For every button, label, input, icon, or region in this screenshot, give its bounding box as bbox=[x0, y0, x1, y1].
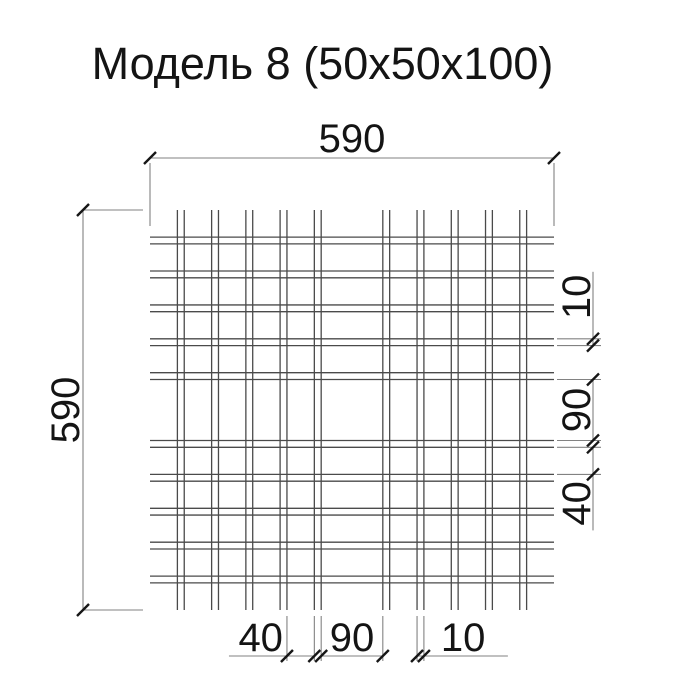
mesh-technical-drawing: 590590409010109040 bbox=[0, 0, 700, 700]
dimension-label-right-1: 90 bbox=[555, 388, 599, 433]
dimension-label-right-2: 40 bbox=[555, 481, 599, 525]
dimension-label-bottom-0: 40 bbox=[238, 616, 283, 660]
dimension-label-left: 590 bbox=[44, 377, 88, 444]
dimension-label-bottom-1: 90 bbox=[330, 616, 375, 660]
dimension-label-top: 590 bbox=[319, 117, 386, 161]
dimension-label-right-0: 10 bbox=[555, 275, 599, 320]
dimension-label-bottom-2: 10 bbox=[441, 616, 486, 660]
